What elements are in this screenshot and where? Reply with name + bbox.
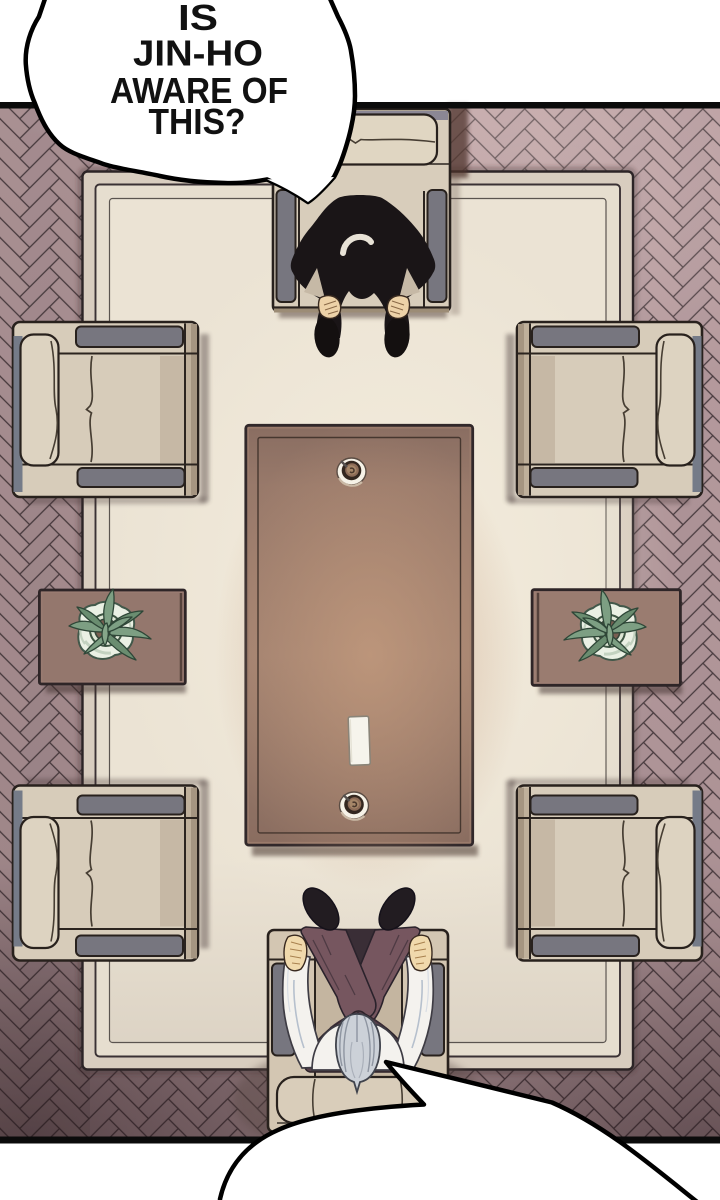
svg-text:THIS?: THIS? [149, 101, 246, 142]
svg-text:JIN-HO: JIN-HO [133, 33, 263, 74]
